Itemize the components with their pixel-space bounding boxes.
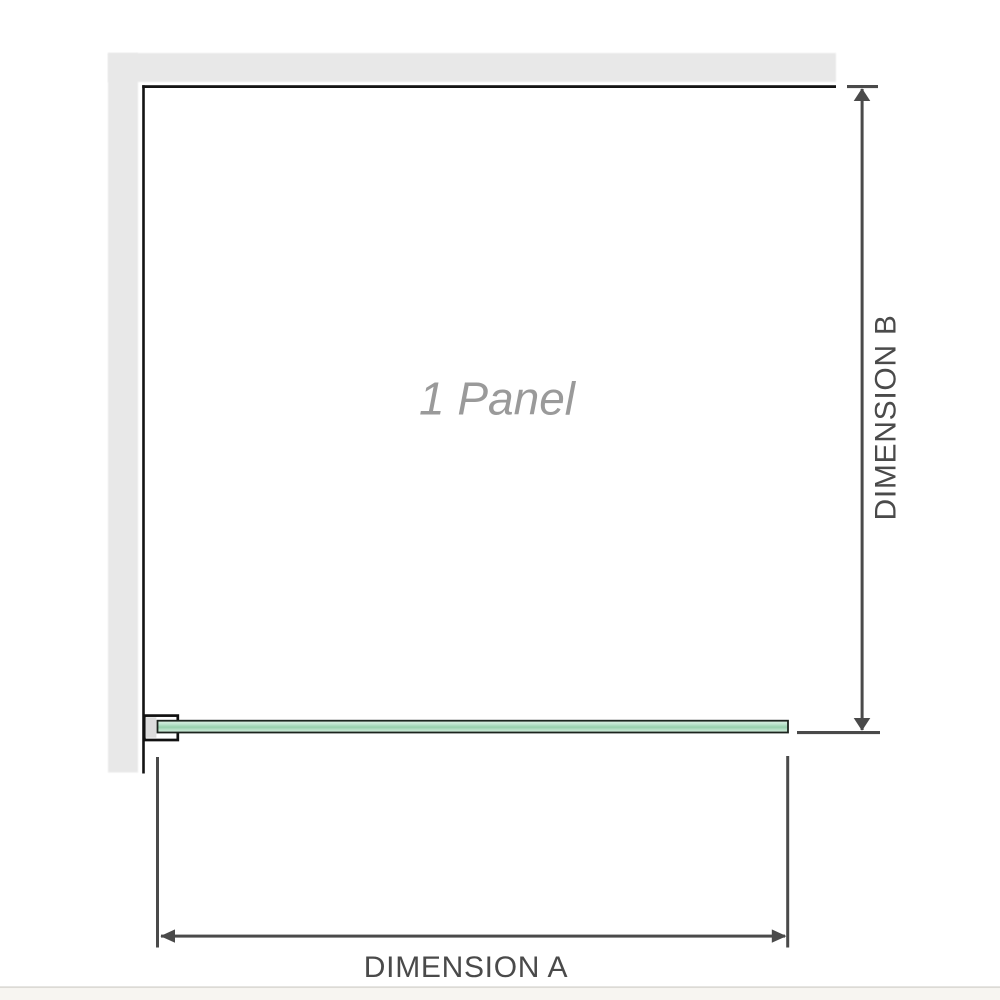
svg-text:DIMENSION A: DIMENSION A [364,951,568,984]
svg-text:1 Panel: 1 Panel [419,373,577,425]
svg-text:DIMENSION B: DIMENSION B [870,314,903,520]
